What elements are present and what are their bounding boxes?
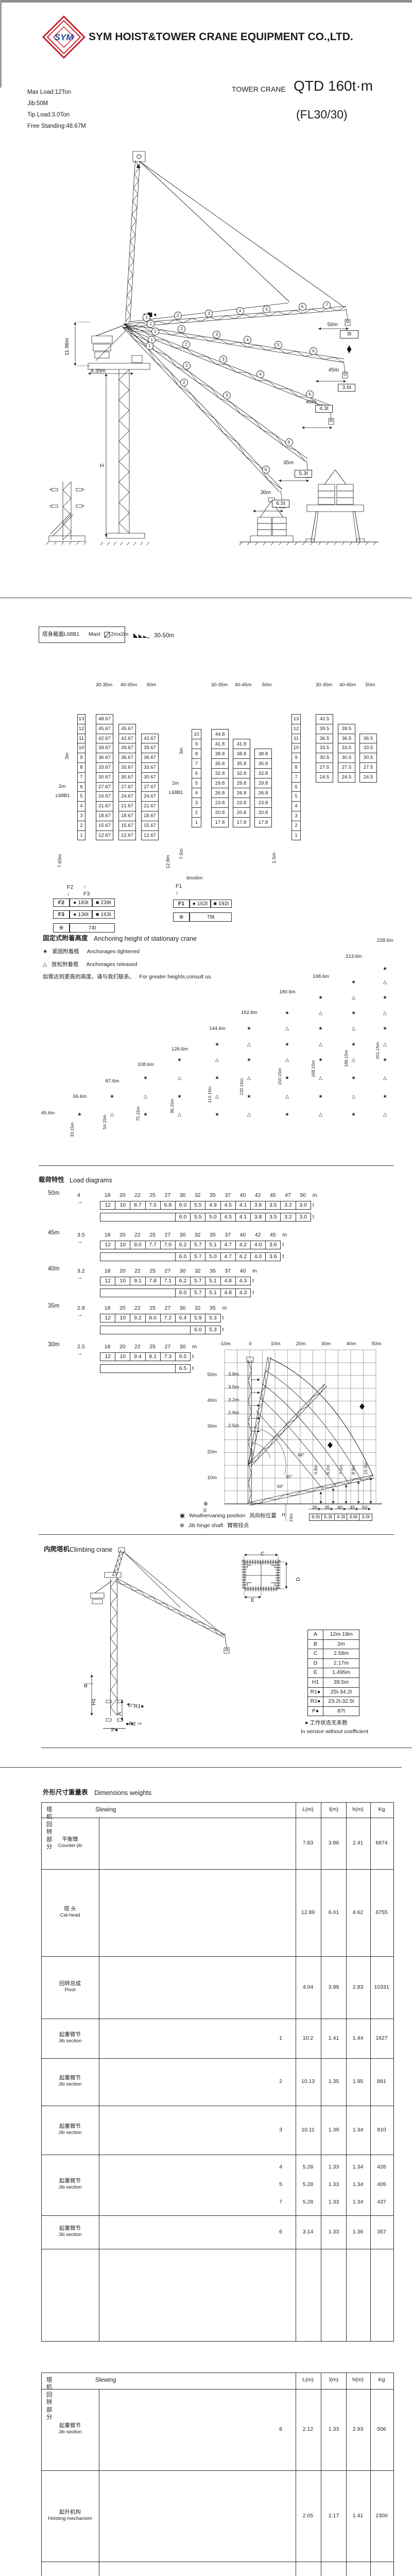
freestanding-height-value: 20.8 bbox=[211, 807, 229, 818]
drawing-primitive bbox=[74, 322, 77, 325]
dims-value-L: 10.11 bbox=[296, 2127, 320, 2133]
jib-config-load-50: 3t bbox=[340, 330, 358, 338]
radius-tick: 40 bbox=[235, 1232, 250, 1239]
drawing-primitive bbox=[311, 542, 313, 545]
spec-line-freestanding: Free Standing:48.67M bbox=[27, 123, 86, 130]
range-x-tick: -10m bbox=[218, 1342, 232, 1347]
drawing-primitive bbox=[306, 539, 314, 542]
range-min-radius: 2.5m bbox=[228, 1423, 239, 1429]
load-2fall-value: 8.7 bbox=[130, 1201, 145, 1210]
load-unit: t bbox=[192, 1365, 194, 1372]
jib-length-header: 40-45m bbox=[336, 683, 359, 688]
anchor-mark: △ bbox=[316, 1011, 325, 1016]
spec-line-tipload: Tip Load:3.0Ton bbox=[27, 111, 70, 118]
freestanding-height-value: 32.8 bbox=[233, 768, 250, 778]
component-name-en: Jib section bbox=[41, 2039, 99, 2044]
climbing-note-cn: ● 工作状态无系数 bbox=[305, 1720, 348, 1726]
anchoring-inner-height: 150.15m bbox=[278, 1062, 283, 1085]
freestanding-height-value: 30.67 bbox=[118, 772, 136, 783]
drawing-primitive bbox=[344, 373, 347, 376]
anchoring-inner-height: 96.15m bbox=[170, 1091, 175, 1113]
mast-section-number: 5 bbox=[291, 791, 301, 802]
radius-tick: 42 bbox=[250, 1192, 265, 1199]
drawing-primitive bbox=[357, 542, 360, 545]
jib-section-number: 1 bbox=[147, 320, 154, 328]
table-vline bbox=[346, 1802, 347, 2342]
drawing-primitive bbox=[247, 542, 250, 545]
mark-r2: ●R2 ⇨ bbox=[126, 1721, 142, 1727]
star-icon: ★ bbox=[43, 948, 47, 955]
drawing-primitive bbox=[334, 542, 337, 545]
drawing-primitive bbox=[318, 498, 335, 504]
freestanding-height-value: 27.67 bbox=[96, 782, 113, 792]
load-2fall-value: 4.9 bbox=[205, 1201, 220, 1210]
dims-value-l: 1.33 bbox=[321, 2229, 346, 2235]
dims-title-cn: 外形尺寸重量表 bbox=[43, 1789, 88, 1797]
drawing-primitive bbox=[344, 380, 346, 383]
radius-tick: 30 bbox=[175, 1268, 190, 1275]
load-4fall-value: 6.0 bbox=[190, 1326, 205, 1334]
drawing-primitive bbox=[244, 1554, 247, 1556]
anchoring-inner-height: 132.15m bbox=[239, 1073, 245, 1095]
range-legend-1: ▣ Weathervaning position 风向标位置 bbox=[180, 1513, 277, 1519]
freestanding-height-value: 36.67 bbox=[96, 753, 113, 763]
range-y-tick: 30m bbox=[204, 1424, 217, 1430]
anchor-mark: ★ bbox=[245, 1026, 253, 1032]
anchor-mark: ★ bbox=[141, 1112, 150, 1118]
radius-tick: 18 bbox=[100, 1305, 115, 1312]
drawing-primitive bbox=[342, 542, 345, 545]
freestanding-height-value: 27.5 bbox=[316, 762, 333, 773]
legend-cn: 放松附着框 bbox=[51, 961, 79, 968]
anchoring-top-height: 108.6m bbox=[130, 1062, 161, 1068]
radius-tick: 20 bbox=[115, 1232, 130, 1239]
radius-tick: 27 bbox=[160, 1268, 175, 1275]
freestanding-height-value: 35.8 bbox=[211, 758, 229, 769]
range-y-tick: 10m bbox=[204, 1476, 217, 1481]
anchor-mark: △ bbox=[381, 1042, 389, 1048]
drawing-primitive bbox=[63, 482, 71, 540]
load-2fall-value: 6.8 bbox=[160, 1201, 176, 1210]
mast-section-note: 塔身截面L68B1 Mast 2mx2m bbox=[39, 626, 125, 643]
drawing-primitive bbox=[260, 501, 271, 517]
drawing-primitive bbox=[318, 542, 321, 545]
mast-section-number: 3 bbox=[192, 798, 201, 808]
drawing-primitive bbox=[318, 484, 335, 491]
freestanding-height-value: 39.5 bbox=[316, 724, 333, 734]
freestanding-height-value: 24.5 bbox=[338, 772, 355, 783]
anchor-mark: △ bbox=[381, 1011, 389, 1016]
load-2fall-value: 5.1 bbox=[205, 1241, 220, 1249]
drawing-primitive bbox=[69, 541, 72, 545]
freestanding-height-value: 18.67 bbox=[118, 811, 136, 821]
range-angle-label: 84° bbox=[298, 1453, 304, 1458]
arrow-right-icon: ⇨ bbox=[138, 1721, 142, 1727]
drawing-primitive bbox=[121, 1718, 124, 1721]
radius-tick: 27 bbox=[160, 1232, 175, 1239]
jib-section-number: 6 bbox=[285, 438, 293, 446]
model-variant: (FL30/30) bbox=[296, 108, 348, 121]
anchor-mark: ★ bbox=[349, 980, 358, 986]
drawing-primitive bbox=[61, 541, 64, 545]
drawing-primitive bbox=[132, 355, 142, 363]
drawing-primitive bbox=[139, 634, 143, 638]
component-name-cn: 起重臂节 bbox=[41, 2031, 99, 2038]
climbing-param-value: 1.495m bbox=[323, 1668, 359, 1678]
reaction-label: F3 bbox=[53, 910, 70, 919]
load-4fall-value: 4.7 bbox=[220, 1252, 236, 1261]
range-tip-load: 3.6t bbox=[347, 1514, 360, 1521]
table-hline bbox=[41, 2389, 394, 2389]
drawing-primitive bbox=[251, 1358, 271, 1466]
min-radius-label: 3.2 → bbox=[77, 1268, 85, 1281]
dims-value-kg: 810 bbox=[369, 2127, 394, 2133]
climbing-param-value: 23.2t-32.5t bbox=[323, 1697, 359, 1707]
anchoring-inner-height: 168.15m bbox=[311, 1055, 316, 1077]
drawing-primitive bbox=[307, 505, 364, 512]
load-title-en: Load diagrams bbox=[70, 1177, 112, 1185]
table-vline bbox=[370, 1802, 371, 2342]
load-2fall-value: 4.0 bbox=[250, 1241, 266, 1249]
drawing-primitive bbox=[330, 419, 333, 422]
mast-section-number: 4 bbox=[77, 801, 85, 811]
load-4fall-value: 5.1 bbox=[205, 1289, 220, 1297]
freestanding-height-value: 27.5 bbox=[338, 762, 355, 773]
dims-col-header: h(m) bbox=[348, 1806, 368, 1813]
drawing-primitive bbox=[345, 1485, 348, 1487]
mast-section-number: 6 bbox=[192, 768, 201, 778]
component-index: 6 bbox=[276, 2229, 286, 2235]
load-2fall-value: 12 bbox=[100, 1277, 115, 1285]
sec-label-d: D bbox=[295, 1574, 302, 1581]
load-4fall-value: 6.5 bbox=[175, 1364, 191, 1373]
climbing-param-key: P● bbox=[307, 1706, 323, 1717]
arrow-left-icon: ⇦ bbox=[128, 1703, 132, 1709]
freestanding-height-value: 21.67 bbox=[141, 801, 159, 811]
dim-7-65: 7.65m bbox=[58, 844, 63, 868]
range-tip-dim: 7.5m bbox=[339, 1454, 344, 1475]
f2-arrow: F2 ↓ bbox=[67, 884, 73, 897]
table-hline bbox=[41, 2019, 394, 2019]
load-2fall-value: 12 bbox=[100, 1201, 115, 1210]
table-vline bbox=[99, 2389, 99, 2576]
reaction-label: F2 bbox=[53, 899, 70, 907]
jib-section-number: 2 bbox=[183, 362, 191, 369]
climbing-param-key: B bbox=[307, 1639, 323, 1650]
freestanding-height-value: 17.8 bbox=[211, 817, 229, 827]
jib-config-len-30: 30m bbox=[252, 489, 271, 496]
mast-section-number: 8 bbox=[77, 762, 85, 773]
freestanding-height-value: 42.67 bbox=[118, 734, 136, 744]
dims-col-header: Kg bbox=[371, 1806, 392, 1813]
dims-value-L: 2.05 bbox=[296, 2513, 320, 2519]
drawing-primitive bbox=[147, 542, 149, 545]
anchoring-top-height: 198.6m bbox=[305, 974, 336, 980]
dim-2m: 2m bbox=[172, 781, 179, 787]
mast-note-cn: 塔身截面L68B1 bbox=[42, 631, 79, 638]
mast-height-label: H bbox=[100, 463, 104, 469]
climbing-param-key: R2● bbox=[307, 1697, 323, 1707]
load-2fall-value: 8.1 bbox=[145, 1352, 161, 1361]
f3-arrow: ↑ F3 bbox=[83, 884, 90, 897]
anchoring-top-height: 228.6m bbox=[370, 938, 401, 944]
jib-section-number: 3 bbox=[219, 355, 227, 363]
mast-section-number: 7 bbox=[77, 772, 85, 783]
component-name-en: Hoisting mechanism bbox=[41, 2516, 99, 2522]
freestanding-height-value: 42.67 bbox=[141, 734, 159, 744]
load-2fall-value: 9.2 bbox=[130, 1314, 145, 1323]
radius-tick: 18 bbox=[100, 1232, 115, 1239]
drawing-primitive bbox=[347, 320, 349, 323]
drawing-primitive bbox=[257, 523, 271, 530]
load-2fall-value: 6.5 bbox=[175, 1352, 191, 1361]
radius-tick: 30 bbox=[175, 1305, 190, 1312]
freestanding-height-value: 20.8 bbox=[233, 807, 250, 818]
drawing-primitive bbox=[249, 1475, 373, 1503]
range-tip-load: 5.3t bbox=[321, 1514, 335, 1521]
jib-section-number: 6 bbox=[306, 391, 314, 398]
load-4fall-value: 3.8 bbox=[250, 1213, 266, 1222]
drawing-primitive bbox=[257, 517, 271, 523]
load-4fall-value: 4.5 bbox=[220, 1213, 236, 1222]
freestanding-height-value: 39.67 bbox=[141, 743, 159, 753]
climbing-param-key: R1● bbox=[307, 1687, 323, 1698]
load-2fall-value: 7.0 bbox=[160, 1241, 176, 1249]
mast-section-number: 11 bbox=[77, 734, 85, 744]
jib-section-number: 3 bbox=[205, 310, 213, 317]
drawing-primitive bbox=[271, 542, 273, 545]
drawing-primitive bbox=[314, 511, 318, 542]
freestanding-height-value: 27.67 bbox=[118, 782, 136, 792]
component-name-cn: 回转总成 bbox=[41, 1980, 99, 1987]
drawing-primitive bbox=[255, 542, 258, 545]
component-name-cn: 平衡臂 bbox=[41, 1836, 99, 1843]
freestanding-height-value: 12.67 bbox=[141, 831, 159, 841]
component-name-en: Jib section bbox=[41, 2130, 99, 2136]
range-tip-length: 45 bbox=[346, 1505, 358, 1511]
component-index: 4 bbox=[276, 2164, 286, 2171]
load-4fall-value: 4.8 bbox=[220, 1289, 236, 1297]
self-load-icon-cell: ⊕ bbox=[53, 923, 70, 933]
load-2fall-value: 4.5 bbox=[220, 1201, 236, 1210]
dims-value-l: 1.33 bbox=[321, 2426, 346, 2433]
drawing-primitive bbox=[373, 542, 376, 545]
table-hline bbox=[41, 1818, 394, 1818]
drawing-primitive bbox=[257, 1430, 260, 1433]
jib-length-label: 30m bbox=[48, 1341, 59, 1348]
component-name-cn: 起重臂节 bbox=[41, 2178, 99, 2184]
component-name-en: Cat-head bbox=[41, 1913, 99, 1919]
drawing-primitive bbox=[136, 164, 141, 168]
load-4fall-value: 5.0 bbox=[205, 1252, 220, 1261]
component-name-en: Jib section bbox=[41, 2185, 99, 2191]
range-tip-dim: 4.8m bbox=[314, 1454, 319, 1475]
load-4fall-value: 4.1 bbox=[235, 1213, 251, 1222]
anchor-mark: △ bbox=[349, 1026, 358, 1032]
range-min-radius: 2.9m bbox=[228, 1411, 239, 1416]
load-2fall-value: 4.8 bbox=[220, 1277, 236, 1285]
dims-value-L: 7.83 bbox=[296, 1840, 320, 1846]
climbing-param-key: C bbox=[307, 1649, 323, 1659]
jib-section-number: 2 bbox=[180, 379, 188, 386]
radius-tick: 25 bbox=[145, 1232, 160, 1239]
radius-tick: 25 bbox=[145, 1305, 160, 1312]
drawing-primitive bbox=[332, 1488, 335, 1490]
anchor-mark: ★ bbox=[108, 1094, 116, 1100]
radius-tick: 27 bbox=[160, 1344, 175, 1350]
anchor-mark: ★ bbox=[283, 1112, 291, 1118]
mark-r1: ⇦ R1● bbox=[128, 1703, 144, 1710]
freestanding-height-value: 26.8 bbox=[254, 788, 272, 798]
mast-section-number: 8 bbox=[192, 749, 201, 759]
load-unit: t bbox=[192, 1353, 194, 1360]
anchor-mark: △ bbox=[381, 1112, 389, 1118]
drawing-primitive bbox=[239, 542, 242, 545]
freestanding-height-value: 24.67 bbox=[96, 791, 113, 802]
jib-length-header: 50m bbox=[140, 683, 163, 688]
drawing-primitive bbox=[91, 1593, 104, 1598]
dims-section-en: Slewing bbox=[95, 2377, 116, 2384]
table-hline bbox=[41, 2215, 394, 2216]
component-name-en: Counter-jib bbox=[41, 1843, 99, 1849]
freestanding-height-value: 36.67 bbox=[141, 753, 159, 763]
drawing-primitive bbox=[257, 1392, 260, 1394]
jib-length-header: 40-45m bbox=[232, 683, 254, 688]
anchor-mark: △ bbox=[283, 1026, 291, 1032]
load-2fall-value: 5.9 bbox=[190, 1314, 205, 1323]
dims-value-l: 2.17 bbox=[321, 2513, 346, 2519]
freestanding-height-value: 36.5 bbox=[359, 734, 377, 744]
legend-cn: 臂根铰点 bbox=[227, 1522, 249, 1529]
load-unit: t bbox=[252, 1290, 254, 1296]
load-2fall-value: 5.1 bbox=[205, 1277, 220, 1285]
self-load-value: 74t bbox=[70, 923, 115, 933]
freestanding-height-value: 15.67 bbox=[118, 821, 136, 831]
load-2fall-value: 7.8 bbox=[145, 1277, 161, 1285]
freestanding-height-value: 42.67 bbox=[96, 734, 113, 744]
load-2fall-value: 4.1 bbox=[235, 1201, 251, 1210]
range-min-radius: 3.5m bbox=[228, 1385, 239, 1391]
jib-length-label: 45m bbox=[48, 1229, 59, 1236]
anchor-mark: ★ bbox=[175, 1058, 184, 1063]
freestanding-height-value: 30.67 bbox=[96, 772, 113, 783]
dims-value-L: 2.12 bbox=[296, 2426, 320, 2433]
load-2fall-value: 3.8 bbox=[250, 1201, 266, 1210]
drawing-primitive bbox=[124, 307, 346, 324]
reaction-out-service: ■ 239t bbox=[92, 899, 115, 907]
radius-tick: 40 bbox=[235, 1192, 250, 1199]
climbing-param-value: 2.17m bbox=[323, 1658, 359, 1669]
jib-config-len-35: 35m bbox=[275, 460, 294, 466]
range-tip-load: 4.3t bbox=[334, 1514, 348, 1521]
load-unit: t bbox=[282, 1253, 284, 1260]
mast-section-number: 1 bbox=[77, 831, 85, 841]
dims-value-kg: 357 bbox=[369, 2229, 394, 2235]
drawing-primitive bbox=[121, 542, 123, 545]
reaction-in-service: ● 162t bbox=[190, 900, 211, 908]
range-tip-dim: 10.3m bbox=[364, 1454, 369, 1475]
table-hline bbox=[41, 2249, 394, 2249]
mast-section-number: 6 bbox=[291, 782, 301, 792]
drawing-primitive bbox=[335, 470, 346, 484]
jib-length-header: 40-45m bbox=[117, 683, 140, 688]
drawing-primitive bbox=[107, 542, 110, 545]
range-x-tick: 20m bbox=[294, 1342, 307, 1347]
drawing-primitive bbox=[126, 161, 140, 322]
anchoring-top-height: 66.6m bbox=[64, 1094, 95, 1100]
drawing-primitive bbox=[370, 1501, 372, 1504]
anchor-mark: △ bbox=[213, 1094, 221, 1100]
jib-range-label: 30-50m bbox=[154, 632, 174, 639]
load-4fall-value: 3.5 bbox=[265, 1213, 281, 1222]
radius-tick: 22 bbox=[130, 1305, 145, 1312]
mast-section-number: 10 bbox=[192, 729, 201, 739]
drawing-primitive bbox=[344, 361, 345, 372]
triangle-icon: △ bbox=[43, 961, 47, 968]
drawing-primitive bbox=[124, 1552, 180, 1607]
freestanding-height-value: 26.8 bbox=[233, 788, 250, 798]
drawing-primitive bbox=[92, 336, 112, 343]
sym-logo: SYM bbox=[42, 15, 85, 59]
drawing-primitive bbox=[92, 1599, 102, 1604]
drawing-primitive bbox=[326, 542, 329, 545]
radius-unit: m bbox=[313, 1192, 317, 1199]
drawing-primitive bbox=[143, 636, 147, 638]
table-hline bbox=[41, 2106, 394, 2106]
anchor-mark: △ bbox=[213, 1058, 221, 1063]
min-radius-label: 3.5 → bbox=[77, 1232, 85, 1245]
range-x-tick: 0 bbox=[244, 1342, 257, 1347]
jib-config-load-30: 6.5t bbox=[272, 500, 289, 507]
dims-value-h: 1.36 bbox=[346, 2229, 370, 2235]
mast-section-number: 7 bbox=[291, 772, 301, 783]
range-y-tick: 20m bbox=[204, 1450, 217, 1455]
radius-tick: 22 bbox=[130, 1344, 145, 1350]
jib-section-number: 4 bbox=[236, 307, 244, 315]
drawing-primitive: SYM bbox=[55, 32, 74, 42]
jib-icon bbox=[133, 633, 149, 638]
mast-section-number: 12 bbox=[291, 724, 301, 734]
range-legend-2: ⊗ Jib hinge shaft 臂根铰点 bbox=[180, 1522, 249, 1529]
drawing-primitive bbox=[366, 542, 368, 545]
component-name-en: Jib section bbox=[41, 2082, 99, 2088]
table-vline bbox=[99, 1818, 99, 2342]
dims-value-l: 1.33 bbox=[321, 2164, 346, 2171]
climbing-note-en: In service without coefficient bbox=[301, 1728, 368, 1735]
drawing-primitive bbox=[111, 1579, 117, 1716]
drawing-primitive bbox=[133, 542, 136, 545]
reaction-label: F1 bbox=[173, 900, 190, 908]
radius-tick: 25 bbox=[145, 1344, 160, 1350]
dims-value-kg: 426 bbox=[369, 2164, 394, 2171]
dims-value-h: 1.34 bbox=[346, 2164, 370, 2171]
anchoring-inner-height: 186.15m bbox=[344, 1044, 349, 1067]
drawing-primitive bbox=[225, 1636, 227, 1648]
climbing-param-value: 12m-19m bbox=[323, 1630, 359, 1640]
component-name-en: Jib section bbox=[41, 2232, 99, 2238]
divider bbox=[39, 1165, 394, 1166]
drawing-primitive bbox=[346, 308, 348, 319]
radius-tick: 35 bbox=[205, 1192, 220, 1199]
freestanding-height-value: 38.8 bbox=[233, 749, 250, 759]
drawing-primitive bbox=[247, 1357, 253, 1362]
table-vline bbox=[321, 2372, 321, 2576]
drawing-primitive bbox=[346, 328, 349, 330]
anchor-mark: △ bbox=[245, 1076, 253, 1081]
anchor-mark: ★ bbox=[349, 1076, 358, 1081]
dims-col-header: L(m) bbox=[298, 2377, 318, 2383]
dims-value-kg: 881 bbox=[369, 2078, 394, 2085]
